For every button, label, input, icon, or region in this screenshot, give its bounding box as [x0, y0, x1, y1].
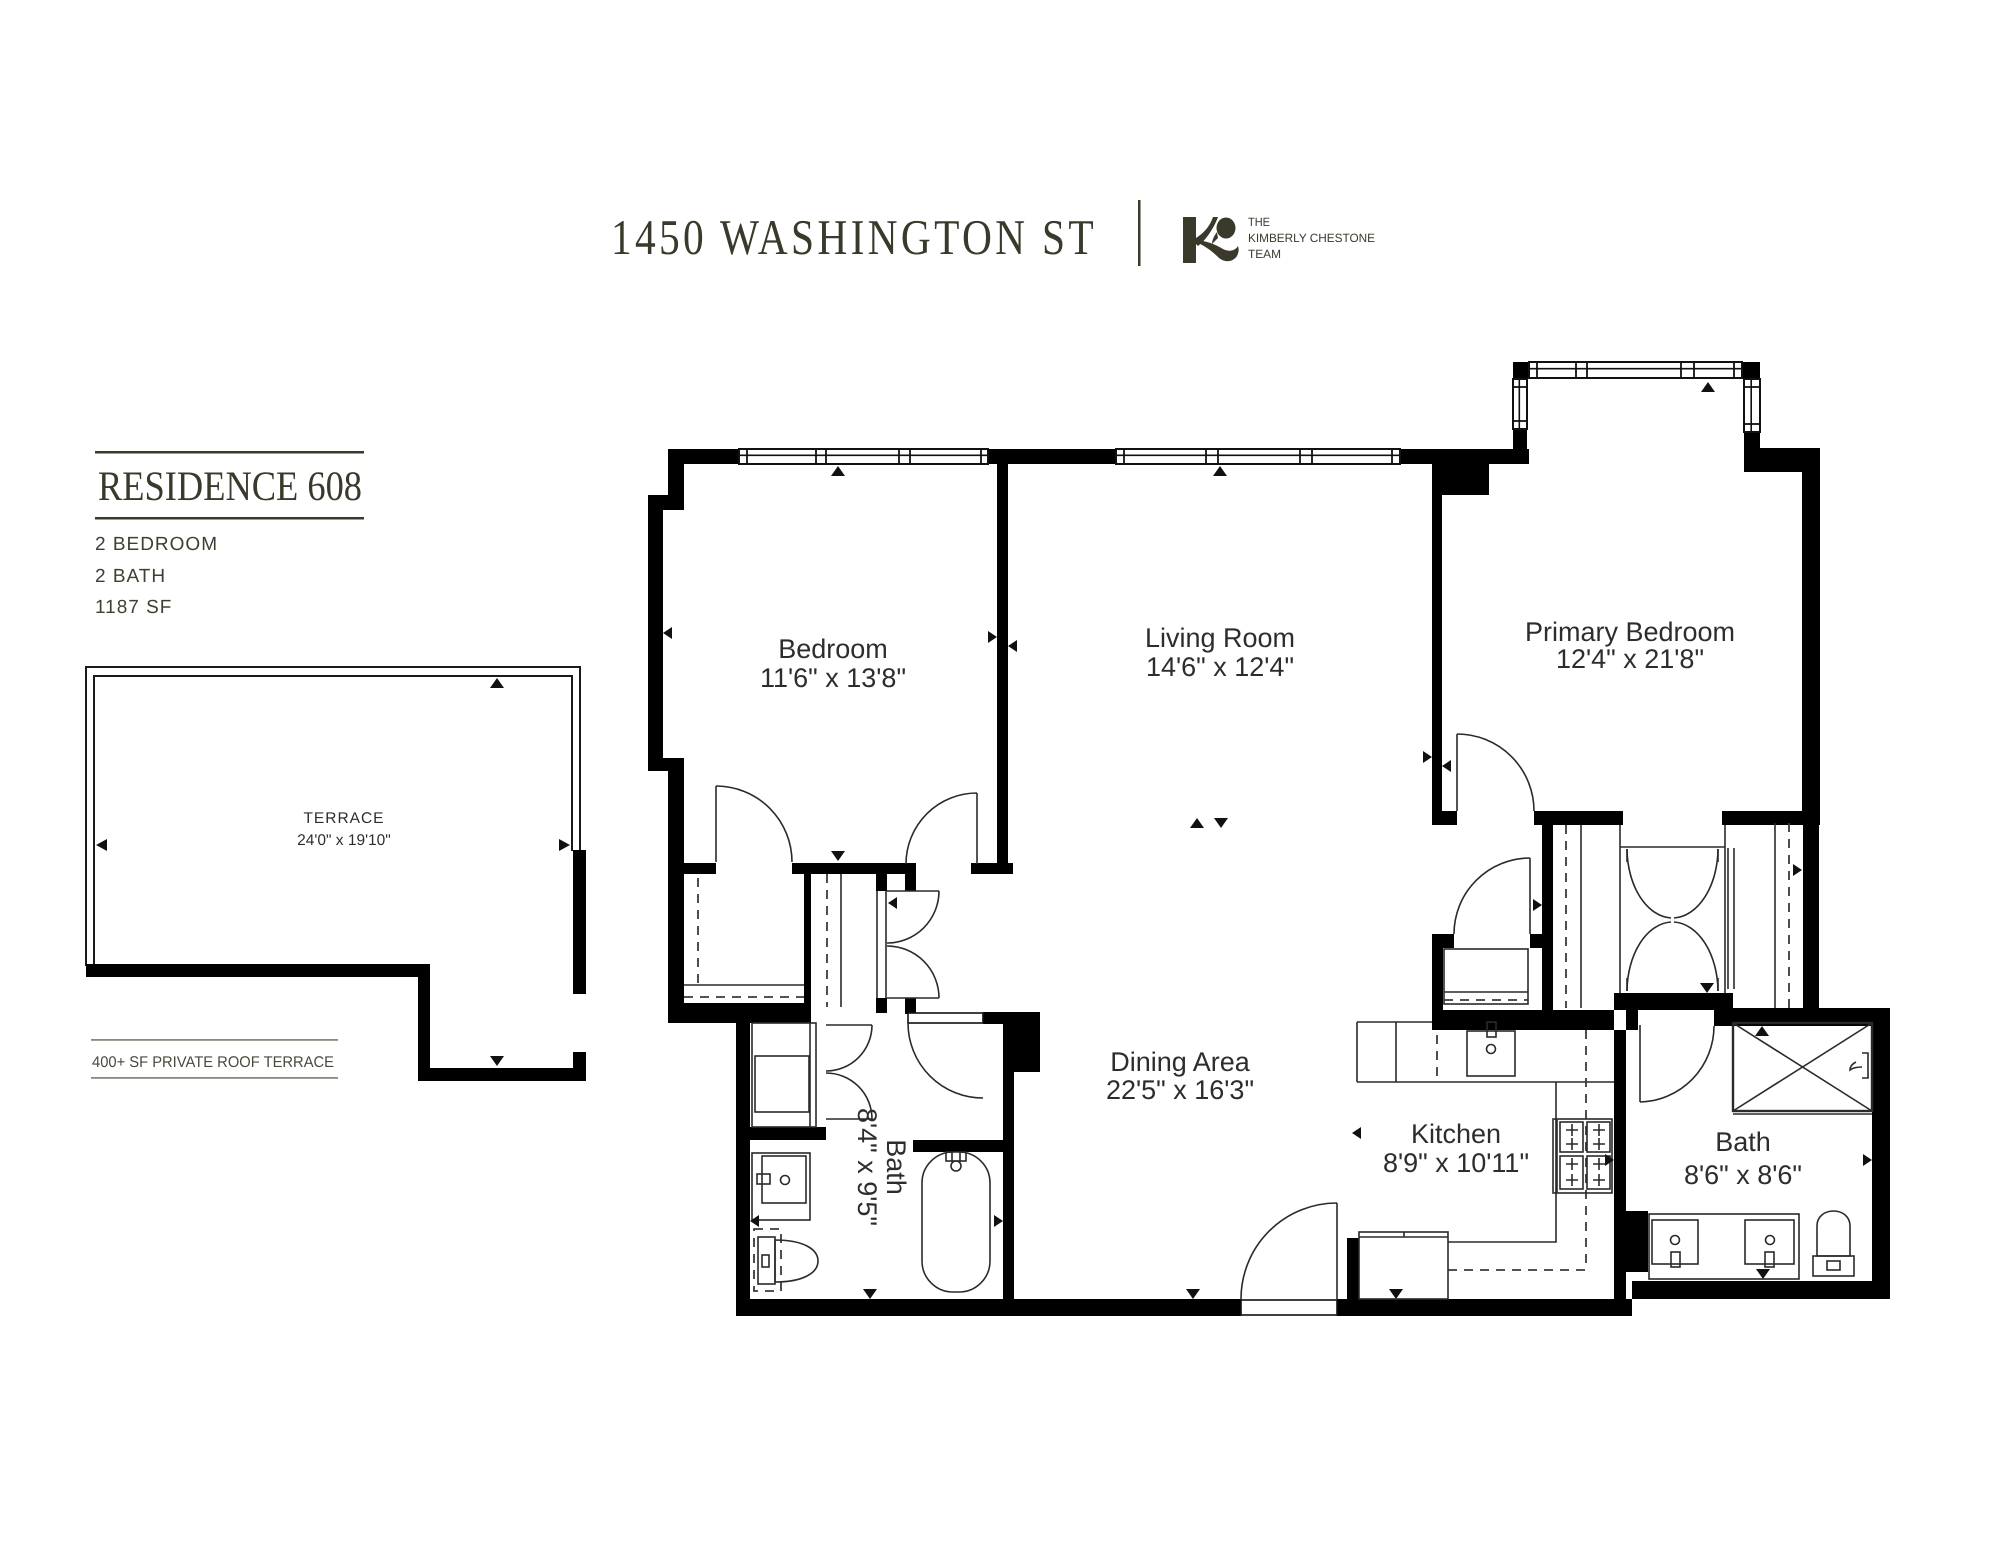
svg-text:Bath: Bath [1715, 1127, 1771, 1157]
svg-text:2 BEDROOM: 2 BEDROOM [95, 534, 218, 555]
svg-text:2 BATH: 2 BATH [95, 566, 166, 587]
svg-text:Dining Area: Dining Area [1110, 1047, 1251, 1077]
svg-text:400+ SF PRIVATE ROOF TERRACE: 400+ SF PRIVATE ROOF TERRACE [92, 1054, 334, 1071]
svg-text:TEAM: TEAM [1248, 247, 1281, 261]
svg-text:8'4" x 9'5": 8'4" x 9'5" [852, 1108, 882, 1226]
svg-text:1450 WASHINGTON ST: 1450 WASHINGTON ST [611, 209, 1097, 265]
svg-text:24'0" x 19'10": 24'0" x 19'10" [297, 832, 391, 849]
svg-text:22'5" x 16'3": 22'5" x 16'3" [1106, 1075, 1254, 1105]
svg-text:8'6" x 8'6": 8'6" x 8'6" [1684, 1160, 1802, 1190]
svg-text:12'4" x 21'8": 12'4" x 21'8" [1556, 644, 1704, 674]
svg-text:Bedroom: Bedroom [778, 634, 888, 664]
svg-text:8'9" x 10'11": 8'9" x 10'11" [1383, 1148, 1529, 1178]
svg-text:14'6" x 12'4": 14'6" x 12'4" [1146, 652, 1294, 682]
svg-text:Kitchen: Kitchen [1411, 1119, 1501, 1149]
svg-text:Bath: Bath [881, 1139, 911, 1195]
svg-text:RESIDENCE 608: RESIDENCE 608 [98, 464, 362, 510]
svg-text:11'6" x 13'8": 11'6" x 13'8" [760, 663, 906, 693]
svg-text:THE: THE [1248, 215, 1270, 229]
svg-text:KIMBERLY CHESTONE: KIMBERLY CHESTONE [1248, 231, 1375, 245]
svg-text:Primary Bedroom: Primary Bedroom [1525, 617, 1735, 647]
svg-text:1187 SF: 1187 SF [95, 597, 172, 618]
svg-text:Living Room: Living Room [1145, 623, 1295, 653]
svg-text:TERRACE: TERRACE [303, 810, 384, 827]
